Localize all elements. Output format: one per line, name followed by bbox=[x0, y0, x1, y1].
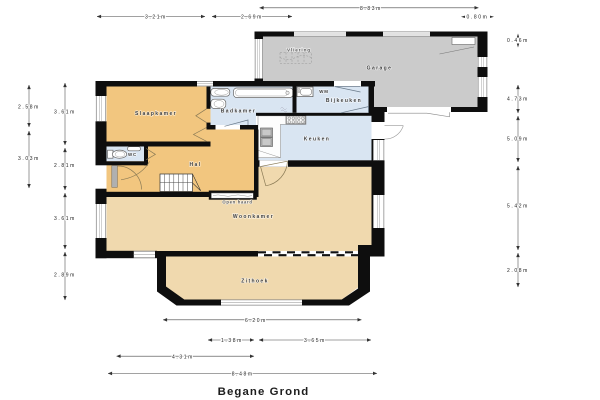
svg-text:Slaapkamer: Slaapkamer bbox=[135, 111, 177, 117]
svg-text:Bijkeuken: Bijkeuken bbox=[326, 98, 362, 104]
svg-text:0.80m: 0.80m bbox=[467, 15, 489, 21]
svg-text:3.61m: 3.61m bbox=[54, 110, 76, 116]
svg-text:3.03m: 3.03m bbox=[18, 156, 40, 162]
svg-text:6.20m: 6.20m bbox=[245, 318, 267, 324]
svg-text:Woonkamer: Woonkamer bbox=[233, 214, 274, 220]
svg-text:3.61m: 3.61m bbox=[54, 216, 76, 222]
svg-text:2.81m: 2.81m bbox=[54, 163, 76, 169]
svg-text:8.83m: 8.83m bbox=[360, 6, 382, 12]
svg-text:Open haard: Open haard bbox=[222, 200, 252, 205]
svg-text:Keuken: Keuken bbox=[304, 137, 330, 143]
svg-text:5.09m: 5.09m bbox=[507, 137, 529, 143]
svg-text:Begane Grond: Begane Grond bbox=[218, 386, 310, 398]
svg-text:1.38m: 1.38m bbox=[221, 338, 243, 344]
svg-text:5.42m: 5.42m bbox=[507, 204, 529, 210]
svg-text:0.46m: 0.46m bbox=[507, 38, 529, 44]
svg-text:Garage: Garage bbox=[367, 65, 393, 71]
svg-text:Hal: Hal bbox=[190, 162, 202, 168]
svg-text:Vliering: Vliering bbox=[287, 48, 311, 53]
svg-text:4.73m: 4.73m bbox=[507, 97, 529, 103]
svg-text:WM: WM bbox=[319, 89, 328, 94]
svg-text:WC: WC bbox=[128, 152, 137, 157]
svg-text:Badkamer: Badkamer bbox=[221, 108, 256, 114]
svg-text:2.69m: 2.69m bbox=[241, 15, 263, 21]
svg-text:2.08m: 2.08m bbox=[507, 268, 529, 274]
svg-text:Zithoek: Zithoek bbox=[241, 278, 269, 284]
svg-text:2.58m: 2.58m bbox=[18, 105, 40, 111]
svg-text:4.31m: 4.31m bbox=[172, 354, 194, 360]
svg-text:8.48m: 8.48m bbox=[232, 372, 254, 378]
svg-text:3.21m: 3.21m bbox=[145, 15, 167, 21]
svg-text:2.89m: 2.89m bbox=[54, 273, 76, 279]
svg-text:3.65m: 3.65m bbox=[304, 338, 326, 344]
